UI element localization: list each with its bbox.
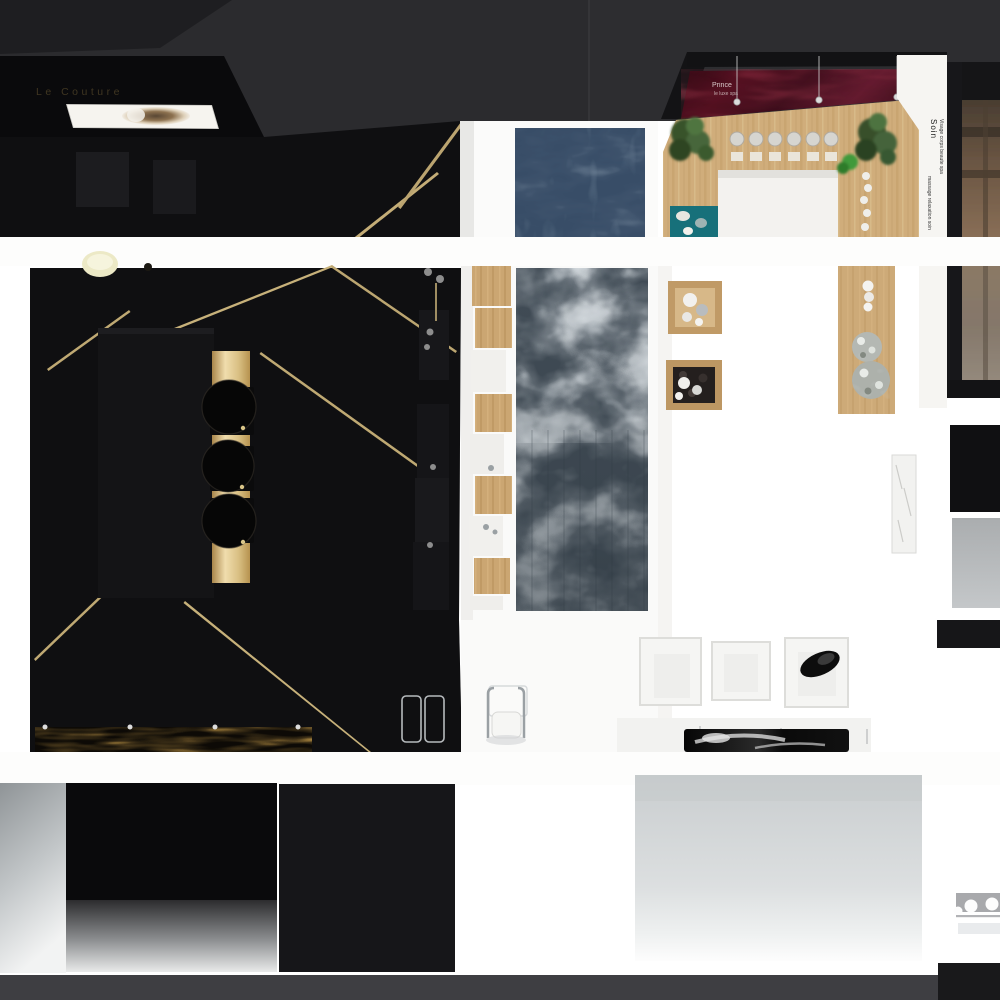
svg-text:le luxe spa: le luxe spa <box>714 91 738 97</box>
svg-text:Visage corps beaute spa: Visage corps beaute spa <box>938 119 944 174</box>
svg-text:Prince: Prince <box>712 82 732 89</box>
svg-text:Le Couture: Le Couture <box>36 86 123 98</box>
svg-text:Soin: Soin <box>929 119 938 139</box>
svg-text:massage relaxation soin: massage relaxation soin <box>926 176 932 230</box>
